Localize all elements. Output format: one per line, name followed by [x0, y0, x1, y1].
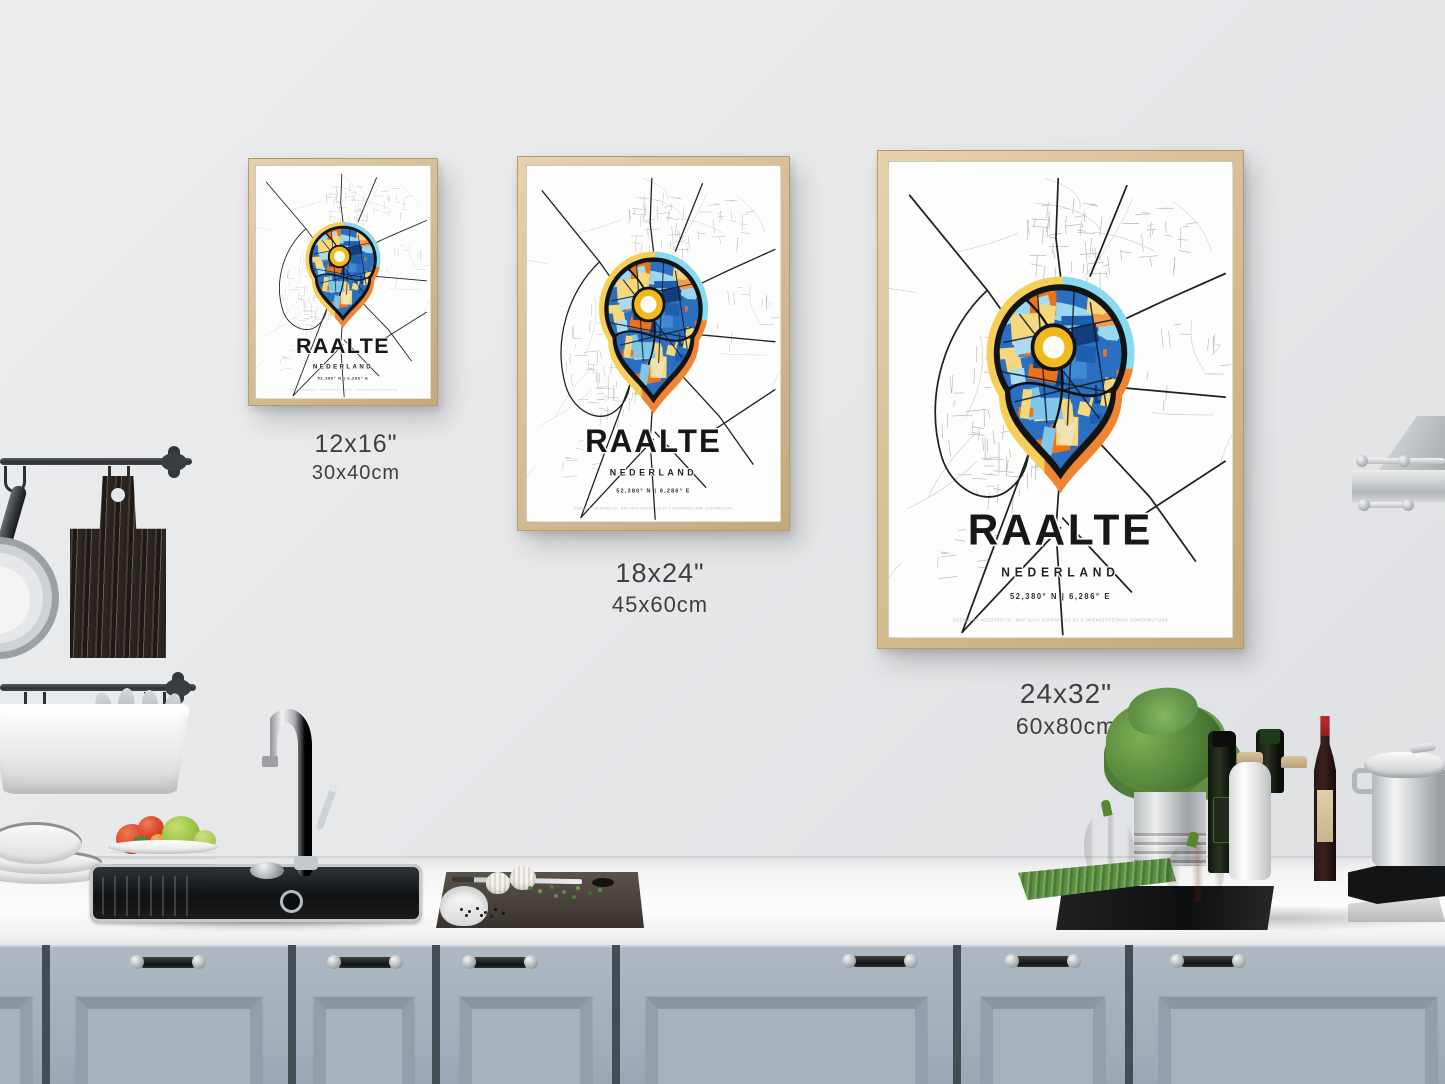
size-cm: 30x40cm — [246, 462, 466, 485]
hood-rail-finial — [1358, 499, 1370, 511]
hood-rail-finial — [1398, 455, 1410, 467]
cabinet-handle — [1014, 956, 1072, 967]
poster-coordinates: 52,380° N | 6,286° E — [616, 488, 690, 494]
pot-lid — [1364, 752, 1445, 778]
soap-dispenser-dome — [250, 862, 284, 879]
pepper-grinder-black — [1272, 766, 1316, 880]
poster-subtitle: NEDERLAND — [313, 363, 373, 370]
cutting-board-hole — [111, 488, 125, 502]
pepper-stem — [1100, 799, 1112, 817]
poster-subtitle: NEDERLAND — [1001, 565, 1119, 579]
size-label-18x24: 18x24" 45x60cm — [550, 558, 770, 618]
hood-rail-finial — [1356, 455, 1368, 467]
chopped-herbs — [528, 886, 532, 890]
map-print: RAALTE NEDERLAND 52,380° N | 6,286° E DE… — [527, 166, 780, 521]
poster-paper: RAALTE NEDERLAND 52,380° N | 6,286° E DE… — [526, 165, 781, 522]
cabinet-door — [0, 945, 42, 1084]
faucet — [250, 684, 350, 876]
rail-end-cap — [168, 446, 180, 478]
poster-title: RAALTE — [968, 506, 1153, 555]
salt-grinder-white — [1229, 762, 1271, 880]
map-print: RAALTE NEDERLAND 52,380° N | 6,286° E DE… — [889, 162, 1232, 637]
hanging-cutting-board — [70, 476, 166, 658]
poster-coordinates: 52,380° N | 6,286° E — [1010, 592, 1111, 601]
steel-pot — [1372, 770, 1445, 866]
cabinet-handle — [1179, 956, 1237, 967]
poster-frame-18x24: RAALTE NEDERLAND 52,380° N | 6,286° E DE… — [517, 156, 790, 531]
size-cm: 45x60cm — [550, 592, 770, 618]
poster-frame-12x16: RAALTE NEDERLAND 52,380° N | 6,286° E DE… — [248, 158, 438, 406]
poster-coordinates: 52,380° N | 6,286° E — [317, 376, 368, 380]
garlic-bulb — [510, 866, 536, 890]
poster-subtitle: NEDERLAND — [610, 468, 697, 478]
poster-title: RAALTE — [585, 422, 722, 459]
cabinet-handle — [851, 956, 909, 967]
bottle-cap — [1212, 731, 1232, 747]
range-hood-band — [1352, 470, 1445, 502]
frying-pan — [0, 476, 76, 664]
pot-lid-knob — [1410, 742, 1437, 754]
poster-paper: RAALTE NEDERLAND 52,380° N | 6,286° E DE… — [255, 165, 431, 399]
board-hole — [592, 878, 614, 887]
sink-drain — [280, 890, 303, 913]
utensil-holder — [0, 704, 190, 794]
poster-attribution: DESIGN BY HEBSTREITS · MAP DATA SUPPORTE… — [288, 388, 397, 391]
wine-cap — [1320, 716, 1329, 736]
poster-attribution: DESIGN BY HEBSTREITS · MAP DATA SUPPORTE… — [953, 617, 1168, 622]
poster-frame-24x32: RAALTE NEDERLAND 52,380° N | 6,286° E DE… — [877, 150, 1244, 649]
size-label-12x16: 12x16" 30x40cm — [246, 430, 466, 485]
small-bowl — [440, 886, 488, 926]
size-inches: 12x16" — [246, 430, 466, 459]
poster-attribution: DESIGN BY HEBSTREITS · MAP DATA SUPPORTE… — [574, 506, 733, 510]
poster-paper: RAALTE NEDERLAND 52,380° N | 6,286° E DE… — [888, 161, 1233, 638]
poster-title: RAALTE — [296, 334, 390, 358]
black-cutting-board — [1056, 886, 1274, 930]
kitchen-poster-mockup: RAALTE NEDERLAND 52,380° N | 6,286° E DE… — [0, 0, 1445, 1084]
size-inches: 18x24" — [550, 558, 770, 589]
map-print: RAALTE NEDERLAND 52,380° N | 6,286° E DE… — [256, 166, 430, 398]
cabinet-handle — [336, 957, 394, 968]
cabinet-handle — [471, 957, 529, 968]
bottle-cap — [1260, 729, 1280, 744]
hood-rail-finial — [1402, 499, 1414, 511]
peppercorns — [460, 908, 463, 911]
garlic-bulb — [486, 872, 510, 894]
wine-label — [1317, 790, 1334, 842]
cabinet-handle — [139, 957, 197, 968]
